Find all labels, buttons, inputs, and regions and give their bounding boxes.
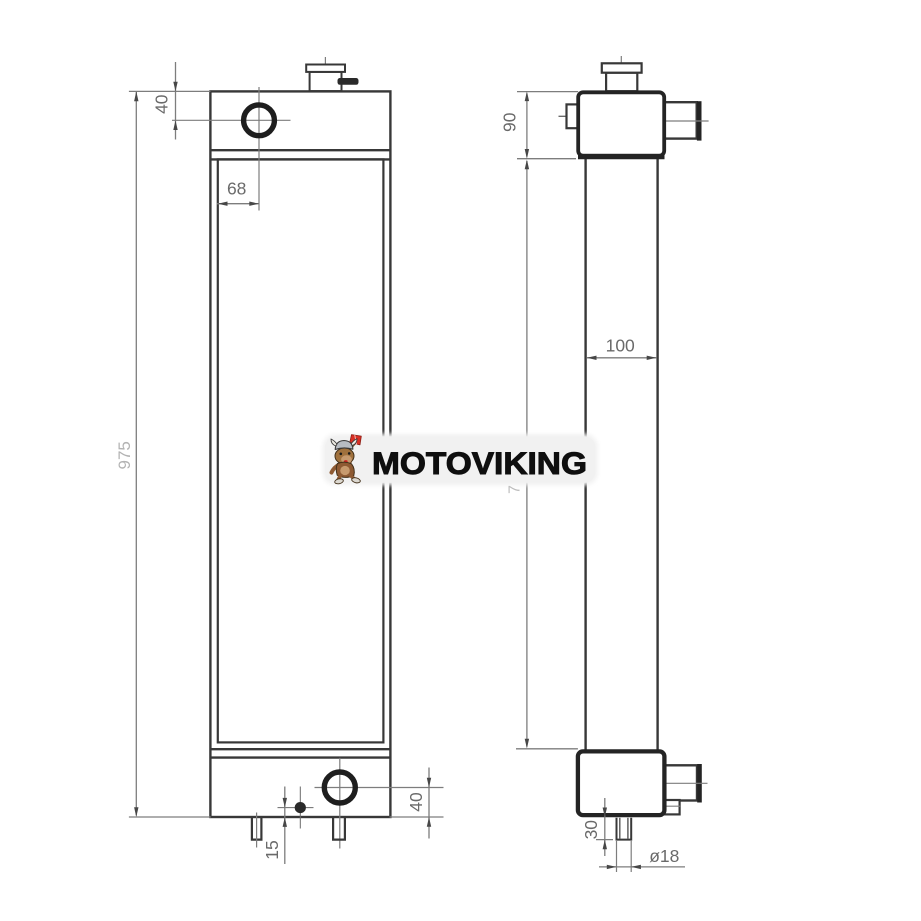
svg-text:100: 100 — [606, 335, 635, 355]
svg-text:30: 30 — [581, 820, 601, 840]
svg-text:40: 40 — [406, 792, 426, 812]
svg-text:15: 15 — [262, 840, 282, 859]
svg-text:68: 68 — [227, 179, 246, 199]
svg-text:ø18: ø18 — [649, 846, 679, 866]
svg-text:7: 7 — [507, 485, 524, 494]
svg-text:975: 975 — [115, 441, 134, 469]
svg-text:90: 90 — [500, 112, 520, 132]
svg-text:40: 40 — [152, 94, 172, 114]
svg-text:MOTOVIKING: MOTOVIKING — [372, 445, 587, 481]
